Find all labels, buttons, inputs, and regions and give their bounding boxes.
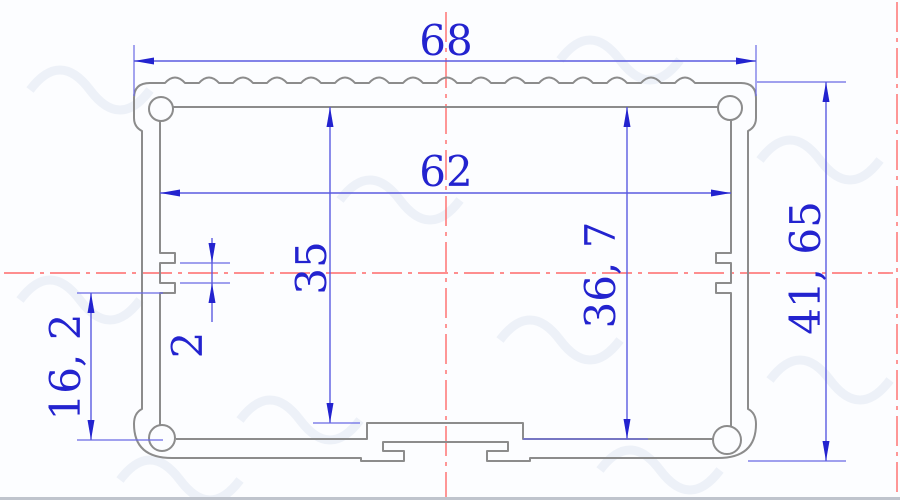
dimension-value: 16, 2	[41, 314, 90, 421]
arrowhead-down	[88, 420, 95, 440]
arrowhead-up	[327, 107, 334, 127]
screw-boss-bottom-right	[713, 426, 741, 454]
screw-boss-top-right	[718, 96, 742, 120]
dimension-slot-width: 2	[163, 238, 230, 358]
dimension-value: 35	[287, 241, 336, 294]
arrowhead-left	[134, 58, 154, 65]
arrowhead-up	[624, 107, 631, 127]
arrowhead-down	[327, 403, 334, 423]
arrowhead-down	[624, 419, 631, 439]
arrowhead-down	[823, 441, 830, 461]
dimension-cavity-height-left: 35	[287, 107, 360, 423]
screw-boss-top-left	[149, 97, 173, 121]
arrowhead-up	[823, 82, 830, 102]
drawing-canvas: 68 62 35 36, 7 16, 2 2	[0, 0, 900, 500]
dimension-value: 41, 65	[781, 201, 830, 335]
arrowhead-up	[88, 293, 95, 313]
extrusion-profile	[134, 78, 756, 462]
dimension-value: 68	[419, 16, 472, 65]
arrowhead-right	[736, 58, 756, 65]
dimension-value: 36, 7	[576, 222, 625, 329]
profile-drawing: 68 62 35 36, 7 16, 2 2	[0, 0, 900, 500]
screw-boss-bottom-left	[149, 425, 175, 451]
dimension-value: 62	[419, 147, 472, 196]
arrowhead-right	[711, 190, 731, 197]
dimension-inner-width: 62	[160, 147, 731, 197]
dimension-value: 2	[163, 332, 212, 359]
arrowhead-up	[209, 283, 216, 303]
arrowhead-down	[209, 243, 216, 263]
profile-outer-contour	[134, 78, 756, 462]
arrowhead-left	[160, 190, 180, 197]
